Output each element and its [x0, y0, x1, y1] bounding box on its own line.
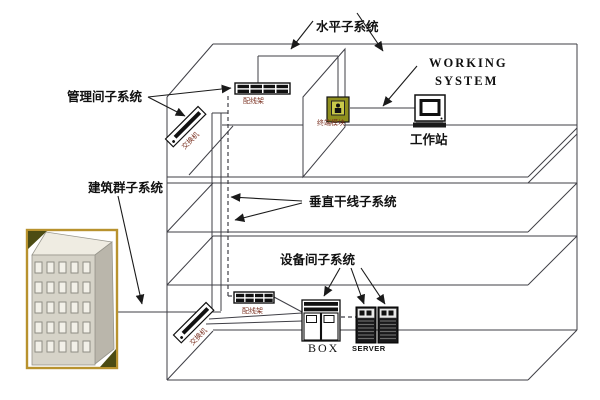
- equipment-room-subsystem-label: 设备间子系统: [280, 252, 356, 267]
- vertical-backbone-dashed-cable: [228, 96, 234, 296]
- patch-panel-bottom-label: 配线架: [242, 306, 263, 315]
- annotation-arrows: [118, 13, 417, 304]
- server-label: SERVER: [352, 344, 386, 353]
- server-tower-2: [378, 307, 398, 343]
- patch-panel-top: [235, 83, 290, 94]
- patch-panel-bottom: [234, 292, 274, 303]
- vertical-backbone-subsystem-label: 垂直干线子系统: [309, 194, 397, 209]
- diagram-canvas: 配线架 交换机 终端模块 工作站 配线架: [0, 0, 600, 400]
- campus-building: [27, 230, 117, 368]
- workstation-computer: [413, 95, 446, 128]
- working-system-label-line2: SYSTEM: [435, 74, 498, 88]
- box-cabinet-label: BOX: [308, 341, 339, 355]
- switch-top: 交换机: [165, 106, 214, 155]
- horizontal-subsystem-label: 水平子系统: [316, 19, 379, 34]
- terminal-module-label: 终端模块: [317, 118, 345, 127]
- box-cabinet: [302, 300, 340, 341]
- management-room-subsystem-label: 管理间子系统: [67, 89, 143, 104]
- workstation-label: 工作站: [410, 132, 448, 147]
- switch-bottom: 交换机: [173, 302, 222, 351]
- campus-subsystem-label: 建筑群子系统: [88, 180, 164, 195]
- terminal-module: [327, 97, 349, 122]
- patch-panel-top-label: 配线架: [243, 96, 264, 105]
- working-system-label-line1: WORKING: [429, 56, 508, 70]
- server-tower-1: [356, 307, 376, 343]
- structured-cabling-diagram: 配线架 交换机 终端模块 工作站 配线架: [0, 0, 600, 400]
